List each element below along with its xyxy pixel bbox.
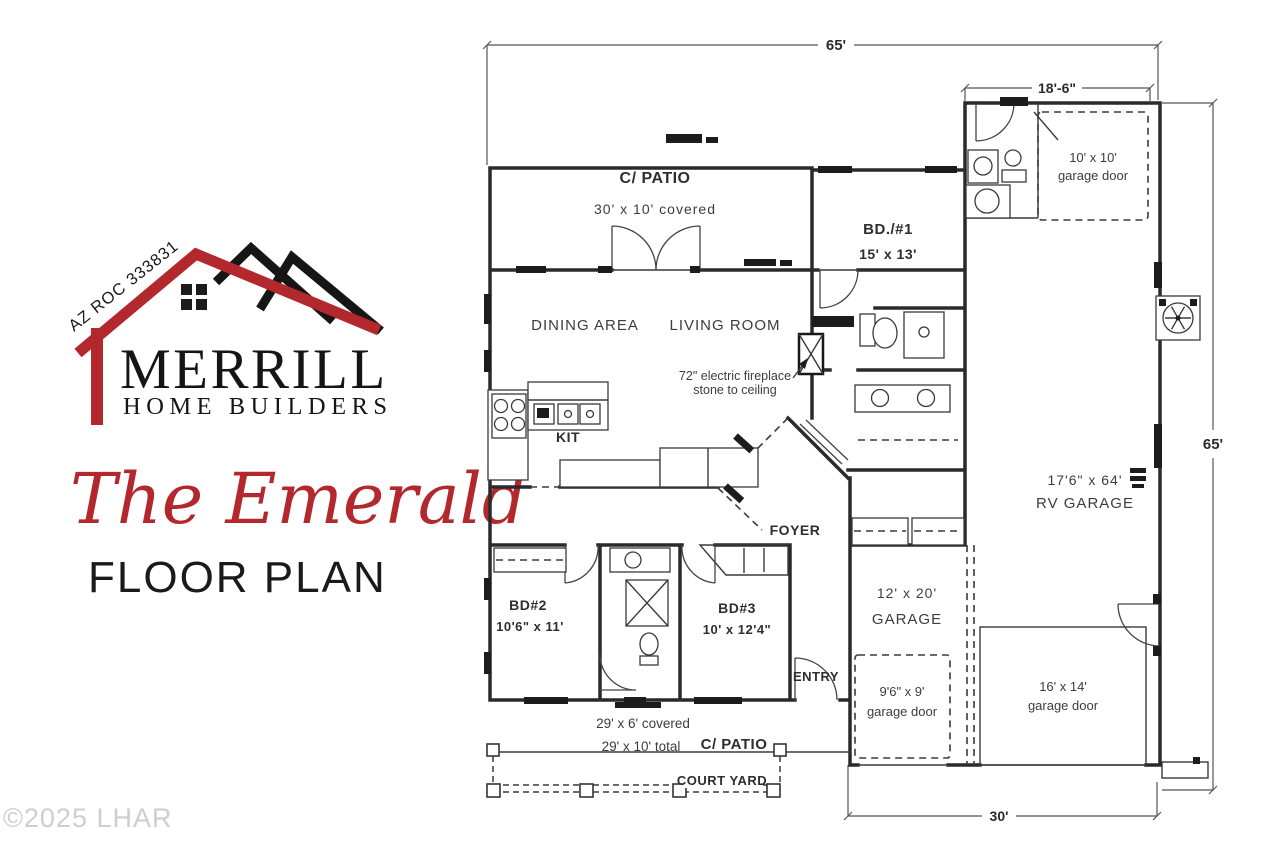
chimney-icon [91, 328, 103, 425]
dim-overall-height: 65' [1203, 436, 1223, 453]
stoop [1162, 762, 1208, 778]
double-vanity [855, 385, 950, 412]
label-garage-door-9-1: 9'6" x 9' [880, 684, 925, 699]
builder-logo: AZ ROC 333831 MERRILL HOME BUILDERS The … [65, 237, 526, 602]
label-patio-top-size: 30' x 10' covered [594, 201, 716, 217]
label-garage-door-10-1: 10' x 10' [1069, 150, 1117, 165]
toilet-icon [640, 633, 658, 655]
label-garage: GARAGE [872, 611, 942, 628]
label-bd3: BD#3 [718, 600, 756, 616]
label-dining: DINING AREA [531, 317, 639, 334]
pool-bath-fixtures [966, 150, 1026, 218]
label-kitchen: KIT [556, 429, 580, 445]
copyright-watermark: ©2025 LHAR [3, 803, 172, 833]
garage-door-10x10-outline [1038, 112, 1148, 220]
sink-icon [625, 552, 641, 568]
plan-type-label: FLOOR PLAN [88, 553, 387, 602]
plan-name: The Emerald [70, 458, 527, 540]
label-rv-garage: RV GARAGE [1036, 495, 1134, 512]
note-fireplace-2: stone to ceiling [693, 383, 776, 397]
fan-icon [1156, 296, 1200, 340]
hall-bath-fixtures [610, 548, 670, 665]
label-garage-door-9-2: garage door [867, 704, 938, 719]
label-rv-garage-size: 17'6" x 64' [1047, 472, 1122, 488]
label-bd3-size: 10' x 12'4" [703, 622, 771, 637]
dim-garage-block-bottom: 30' [990, 808, 1009, 824]
label-foyer: FOYER [770, 522, 821, 538]
company-name: MERRILL [120, 338, 388, 401]
dim-overall-width: 65' [826, 37, 846, 54]
toilet-icon [1005, 150, 1021, 166]
fireplace [793, 334, 823, 378]
label-garage-size: 12' x 20' [877, 585, 937, 601]
garage-door-16x14-outline [980, 627, 1146, 765]
sink-icon [974, 157, 992, 175]
dim-garage-block-width: 18'-6" [1038, 80, 1076, 96]
label-patio-top: C/ PATIO [620, 170, 691, 187]
label-bd1: BD./#1 [863, 221, 913, 238]
floor-plan-sheet: AZ ROC 333831 MERRILL HOME BUILDERS The … [0, 0, 1280, 853]
kitchen-fixtures [488, 382, 758, 487]
window-icon [181, 284, 207, 310]
shower-drain-icon [975, 189, 999, 213]
walls [490, 103, 1160, 765]
window-ticks [484, 166, 1162, 704]
label-garage-door-10-2: garage door [1058, 168, 1129, 183]
label-patio-bottom: C/ PATIO [701, 736, 768, 753]
note-fireplace-1: 72" electric fireplace [679, 369, 791, 383]
label-bd2-size: 10'6" x 11' [496, 619, 564, 634]
small-notes [615, 97, 1200, 764]
label-living: LIVING ROOM [669, 317, 780, 334]
label-garage-door-16-1: 16' x 14' [1039, 679, 1087, 694]
label-patio-bottom-size2: 29' x 10' total [602, 739, 681, 754]
label-entry: ENTRY [793, 669, 839, 684]
label-garage-door-16-2: garage door [1028, 698, 1099, 713]
label-court-yard: COURT YARD [677, 773, 767, 788]
label-bd2: BD#2 [509, 597, 547, 613]
company-tagline: HOME BUILDERS [123, 393, 393, 420]
label-patio-bottom-size1: 29' x 6' covered [596, 716, 690, 731]
toilet-icon [873, 318, 897, 348]
master-bath-fixtures [812, 312, 958, 440]
label-bd1-size: 15' x 13' [859, 246, 917, 262]
